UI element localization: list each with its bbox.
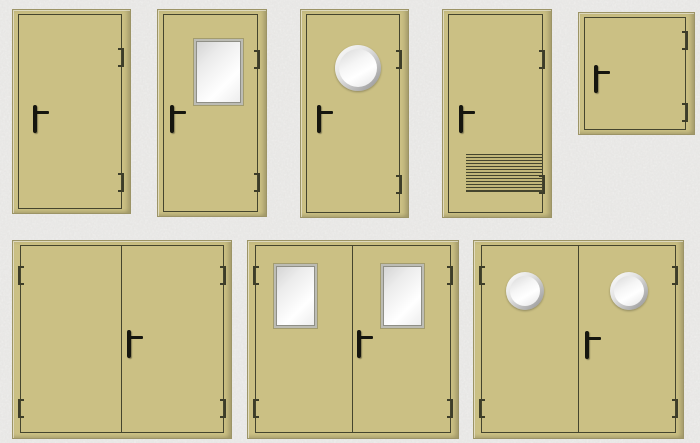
handle-backplate — [357, 330, 361, 358]
handle-backplate — [127, 330, 131, 358]
leaf-divider — [121, 246, 122, 432]
door-hinge — [539, 175, 545, 194]
door-hinge — [253, 399, 259, 418]
porthole-window — [335, 45, 381, 91]
door-leaf — [481, 245, 676, 433]
handle-lever — [597, 71, 610, 74]
leaf-divider — [352, 246, 353, 432]
door-tile-double-leaf-plain[interactable] — [12, 240, 232, 439]
handle-backplate — [33, 105, 37, 133]
door-window — [274, 264, 317, 328]
door-handle — [459, 105, 477, 133]
door-hinge — [18, 266, 24, 285]
door-handle — [170, 105, 188, 133]
door-handle — [127, 330, 145, 358]
porthole-glass — [339, 49, 377, 87]
door-handle — [357, 330, 375, 358]
porthole-window — [610, 272, 648, 310]
door-tile-single-leaf-glazed[interactable] — [157, 9, 267, 217]
door-handle — [594, 65, 612, 93]
handle-lever — [36, 111, 49, 114]
door-tile-service-hatch[interactable] — [578, 12, 695, 135]
door-hinge — [118, 48, 124, 67]
door-hinge — [254, 50, 260, 69]
handle-lever — [320, 111, 333, 114]
handle-backplate — [585, 331, 589, 359]
door-handle — [585, 331, 603, 359]
door-hinge — [220, 266, 226, 285]
handle-backplate — [459, 105, 463, 133]
door-hinge — [396, 50, 402, 69]
door-hinge — [672, 266, 678, 285]
porthole-glass — [614, 276, 644, 306]
ventilation-grille — [466, 154, 542, 192]
handle-lever — [130, 336, 143, 339]
door-hinge — [479, 399, 485, 418]
door-hinge — [18, 399, 24, 418]
handle-lever — [462, 111, 475, 114]
door-window — [194, 39, 243, 105]
handle-lever — [360, 336, 373, 339]
porthole-glass — [510, 276, 540, 306]
door-tile-single-leaf-plain[interactable] — [12, 9, 131, 214]
door-hinge — [682, 103, 688, 122]
door-hinge — [447, 399, 453, 418]
door-hinge — [479, 266, 485, 285]
door-hinge — [254, 173, 260, 192]
door-hinge — [672, 399, 678, 418]
door-hinge — [253, 266, 259, 285]
door-tile-single-leaf-vent-grille[interactable] — [442, 9, 552, 218]
door-window — [381, 264, 424, 328]
door-handle — [33, 105, 51, 133]
door-hinge — [447, 266, 453, 285]
door-leaf — [20, 245, 224, 433]
porthole-window — [506, 272, 544, 310]
door-hinge — [396, 175, 402, 194]
handle-backplate — [317, 105, 321, 133]
handle-backplate — [594, 65, 598, 93]
door-tile-double-leaf-glazed[interactable] — [247, 240, 459, 439]
door-tile-double-leaf-porthole[interactable] — [473, 240, 684, 439]
door-catalog — [0, 0, 700, 443]
door-hinge — [220, 399, 226, 418]
leaf-divider — [578, 246, 579, 432]
door-hinge — [682, 31, 688, 50]
door-hinge — [118, 173, 124, 192]
door-tile-single-leaf-porthole[interactable] — [300, 9, 409, 218]
handle-backplate — [170, 105, 174, 133]
door-handle — [317, 105, 335, 133]
handle-lever — [588, 337, 601, 340]
door-hinge — [539, 50, 545, 69]
handle-lever — [173, 111, 186, 114]
